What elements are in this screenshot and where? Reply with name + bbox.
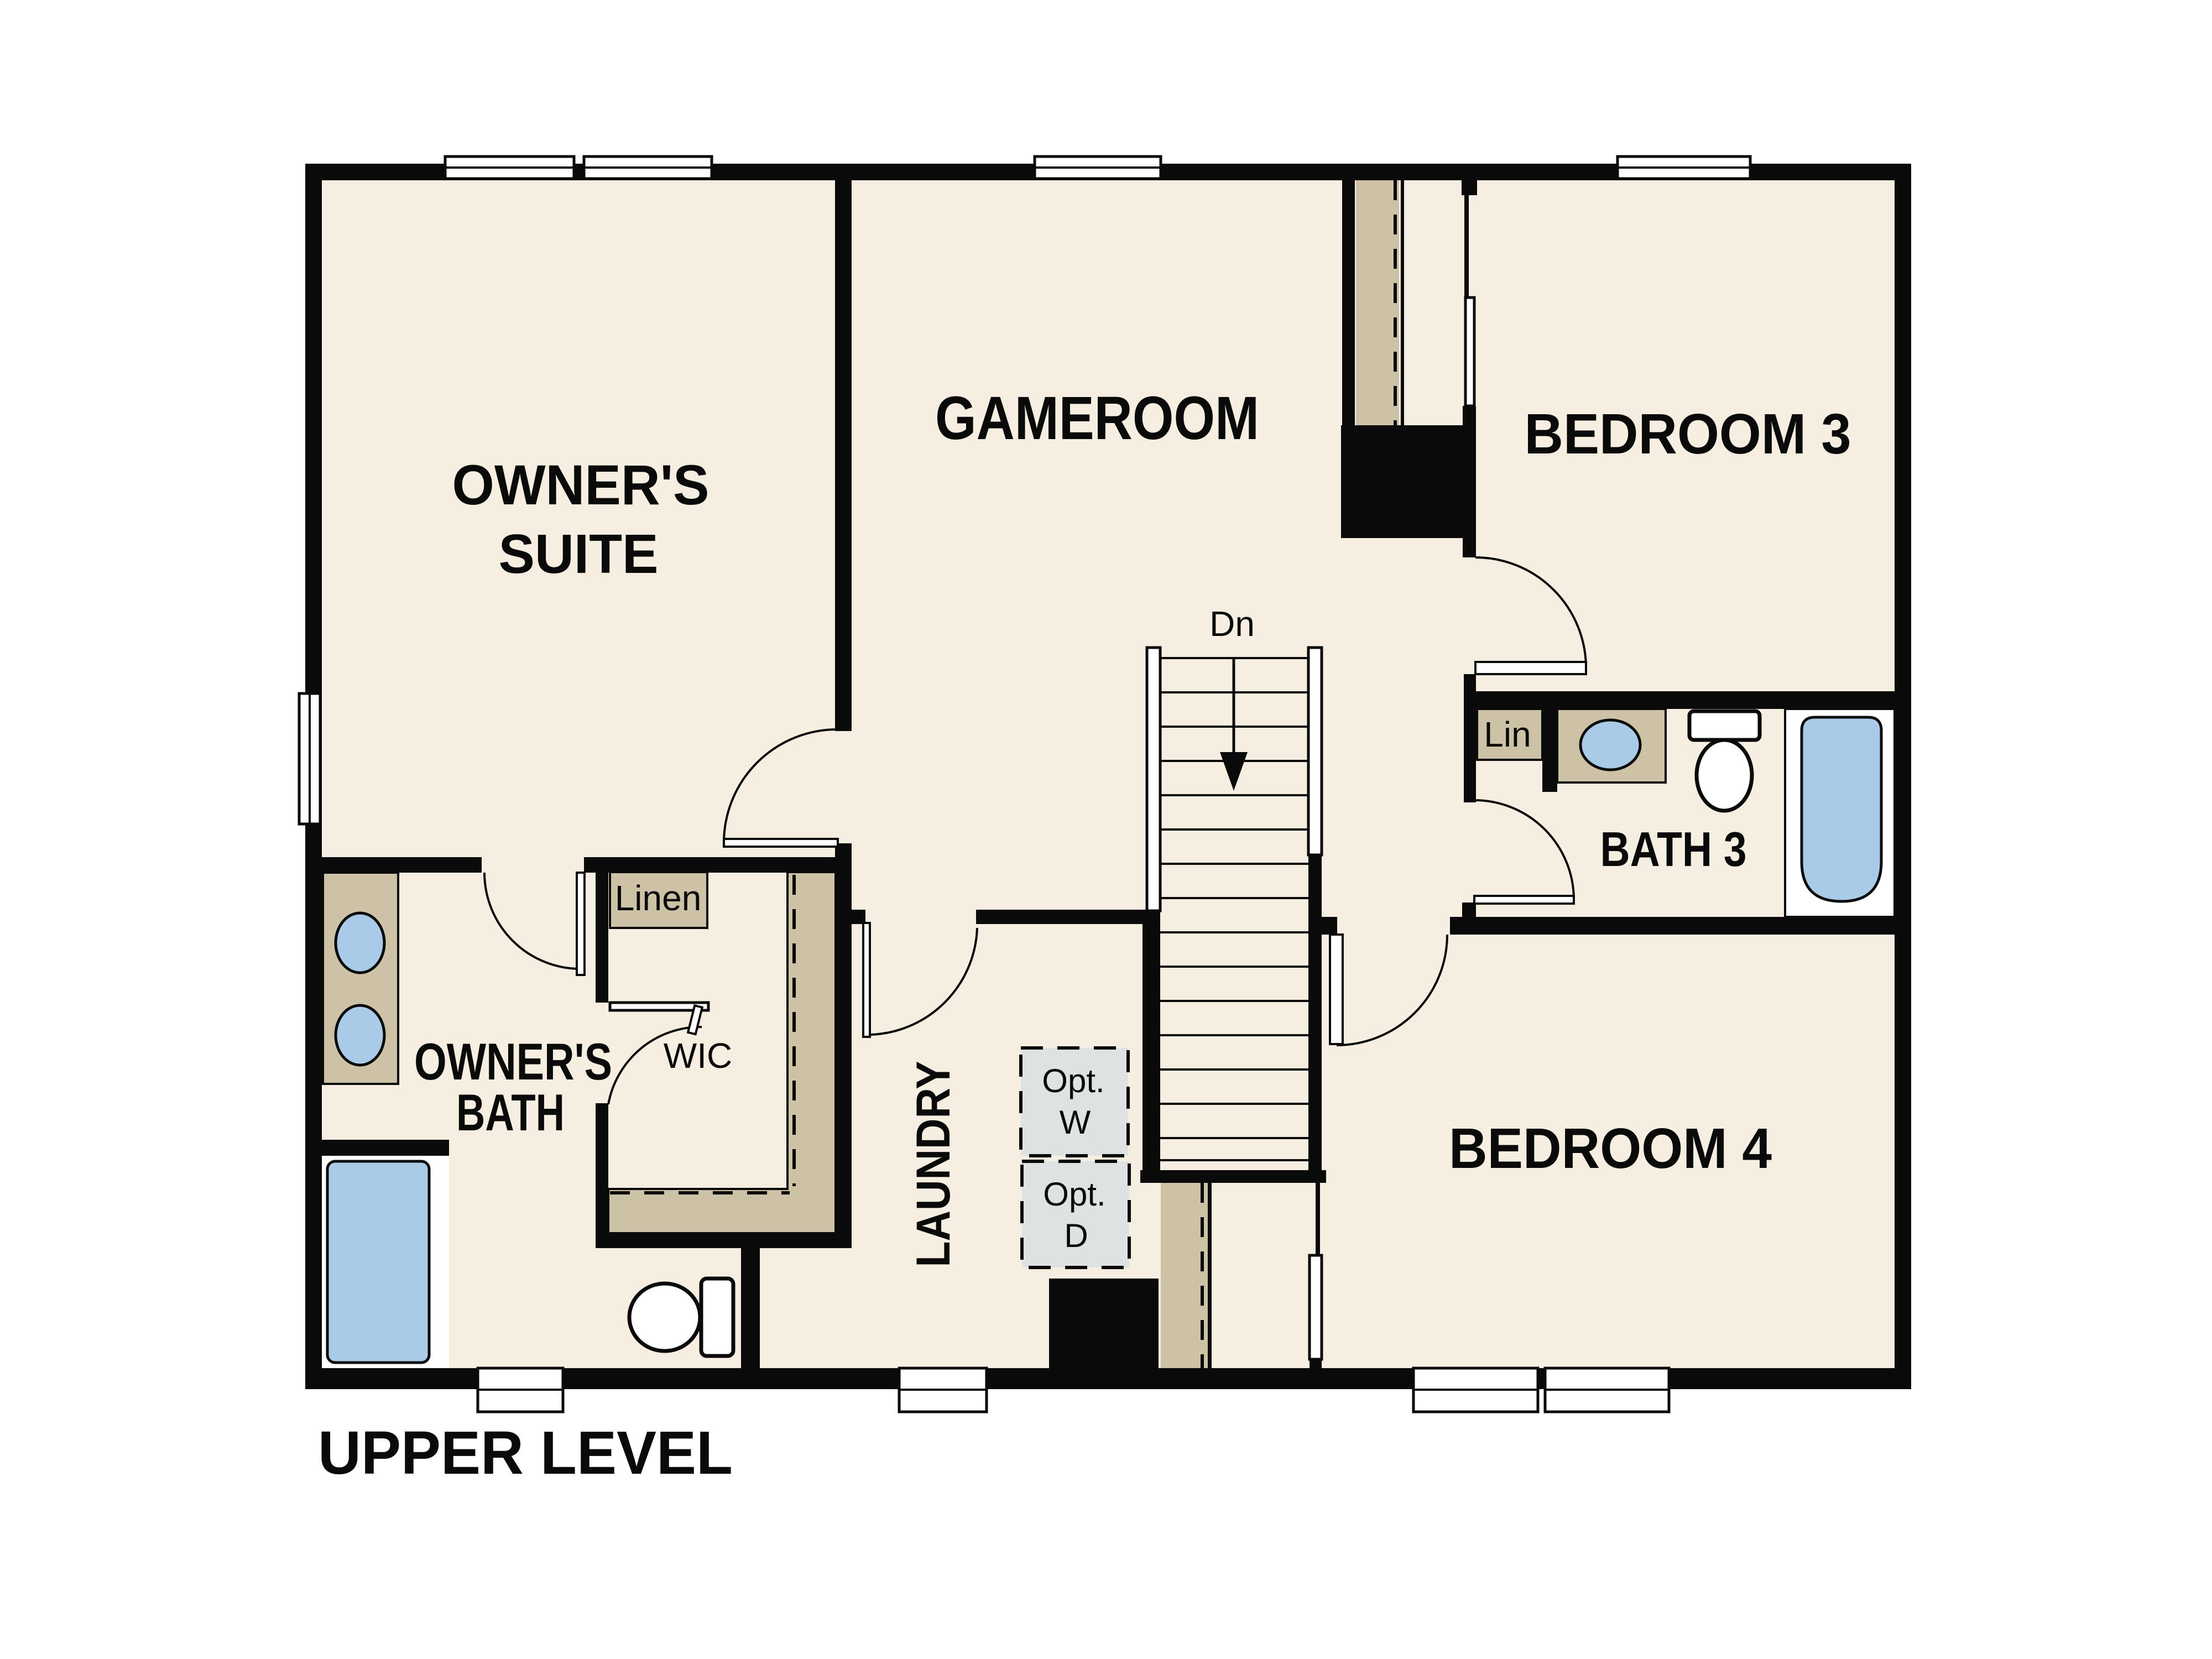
svg-text:W: W <box>1060 1104 1091 1141</box>
svg-text:Lin: Lin <box>1484 714 1531 754</box>
svg-text:BATH 3: BATH 3 <box>1600 822 1747 877</box>
svg-text:Opt.: Opt. <box>1042 1062 1104 1099</box>
svg-text:BATH: BATH <box>456 1083 565 1141</box>
svg-text:OWNER'S: OWNER'S <box>414 1032 612 1091</box>
svg-text:D: D <box>1064 1217 1088 1254</box>
svg-text:OWNER'S: OWNER'S <box>452 453 709 517</box>
svg-text:LAUNDRY: LAUNDRY <box>907 1061 960 1267</box>
svg-text:BEDROOM 3: BEDROOM 3 <box>1525 402 1851 466</box>
svg-text:Opt.: Opt. <box>1043 1176 1105 1213</box>
svg-text:GAMEROOM: GAMEROOM <box>935 384 1259 452</box>
svg-text:Linen: Linen <box>615 878 702 918</box>
svg-text:UPPER LEVEL: UPPER LEVEL <box>318 1419 733 1487</box>
svg-text:SUITE: SUITE <box>499 523 659 585</box>
svg-text:Dn: Dn <box>1209 604 1255 644</box>
svg-text:WIC: WIC <box>664 1036 732 1076</box>
svg-text:BEDROOM 4: BEDROOM 4 <box>1449 1117 1772 1180</box>
